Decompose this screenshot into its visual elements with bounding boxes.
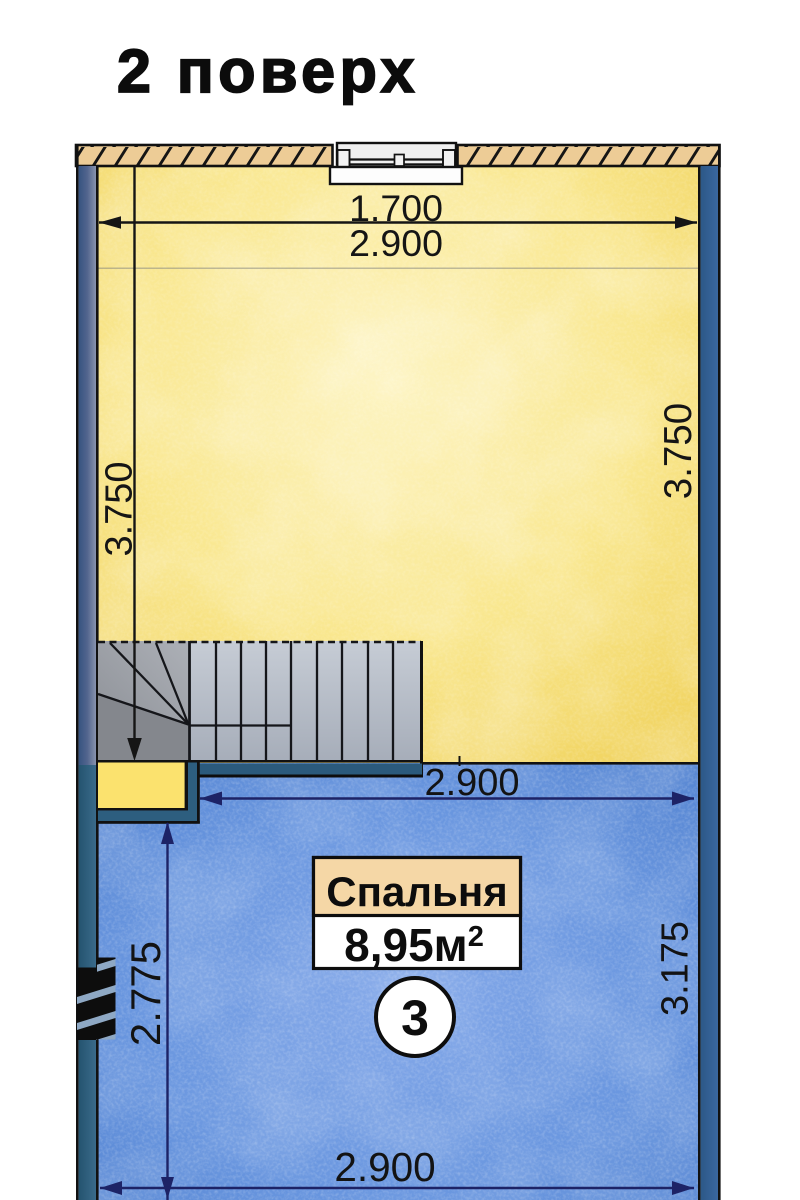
svg-text:3.750: 3.750 [657, 403, 700, 499]
svg-text:2.900: 2.900 [334, 1144, 435, 1190]
svg-text:2.775: 2.775 [122, 941, 169, 1046]
svg-text:2.900: 2.900 [349, 222, 443, 264]
svg-text:Спальня: Спальня [326, 868, 507, 915]
svg-text:3.750: 3.750 [99, 461, 141, 556]
svg-text:3: 3 [401, 990, 429, 1046]
svg-text:8,95м2: 8,95м2 [344, 919, 484, 971]
svg-text:2.900: 2.900 [424, 762, 519, 804]
svg-text:3.175: 3.175 [655, 921, 697, 1016]
